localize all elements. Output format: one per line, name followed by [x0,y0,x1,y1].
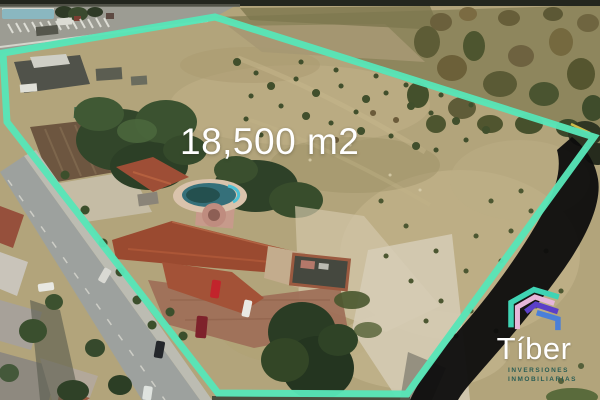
tagline: INVERSIONES INMOBILIARIAS [508,367,577,384]
area-label: 18,500 m2 [180,121,359,163]
walled-enclosure [291,254,350,290]
brand-name: Tíber [497,333,572,364]
tagline-line1: INVERSIONES [508,367,577,376]
tagline-line2: INMOBILIARIAS [508,376,577,385]
tiber-logo: Tíber INVERSIONES INMOBILIARIAS [486,285,582,384]
property-listing-image: 18,500 m2 Tíber INVERSIONES INMOBILIARIA… [0,0,600,400]
maroon-car [195,316,208,339]
pool-lagoon [2,9,54,19]
white-truck [57,17,72,25]
aqueduct-arches-icon [506,285,562,331]
